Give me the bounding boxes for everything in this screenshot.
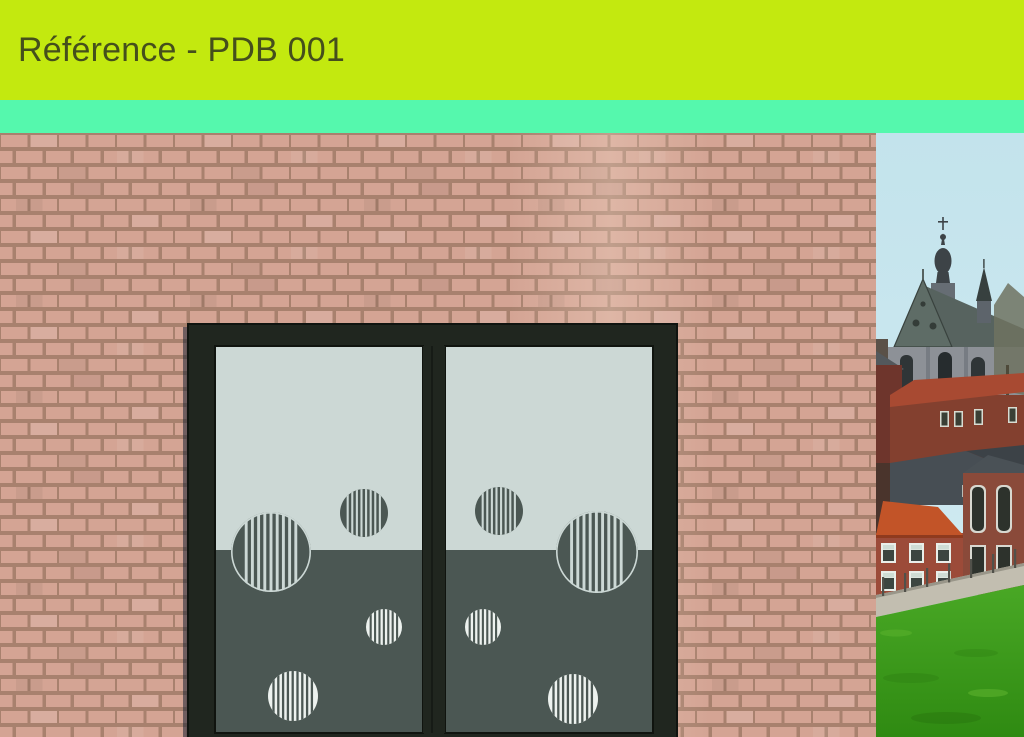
page-title: Référence - PDB 001: [18, 31, 345, 70]
reference-poster: Référence - PDB 001: [0, 0, 1024, 737]
accent-strip: [0, 100, 1024, 133]
window-mullion: [423, 346, 445, 733]
motif-circle-left-mid: [366, 609, 402, 645]
motif-circle-left-bottom: [268, 671, 318, 721]
motif-circle-right-bottom: [548, 674, 598, 724]
window-mullion-line: [431, 346, 433, 733]
frame-left-shadow: [183, 327, 187, 737]
motif-circle-right-top: [475, 487, 523, 535]
motif-circle-left-top: [340, 489, 388, 537]
glass-light-left: [215, 346, 423, 550]
motif-circle-right-mid: [465, 609, 501, 645]
window: [181, 323, 691, 737]
header-bar: Référence - PDB 001: [0, 0, 1024, 100]
facade-scene: [0, 133, 1024, 737]
village-photo: [876, 133, 1024, 737]
